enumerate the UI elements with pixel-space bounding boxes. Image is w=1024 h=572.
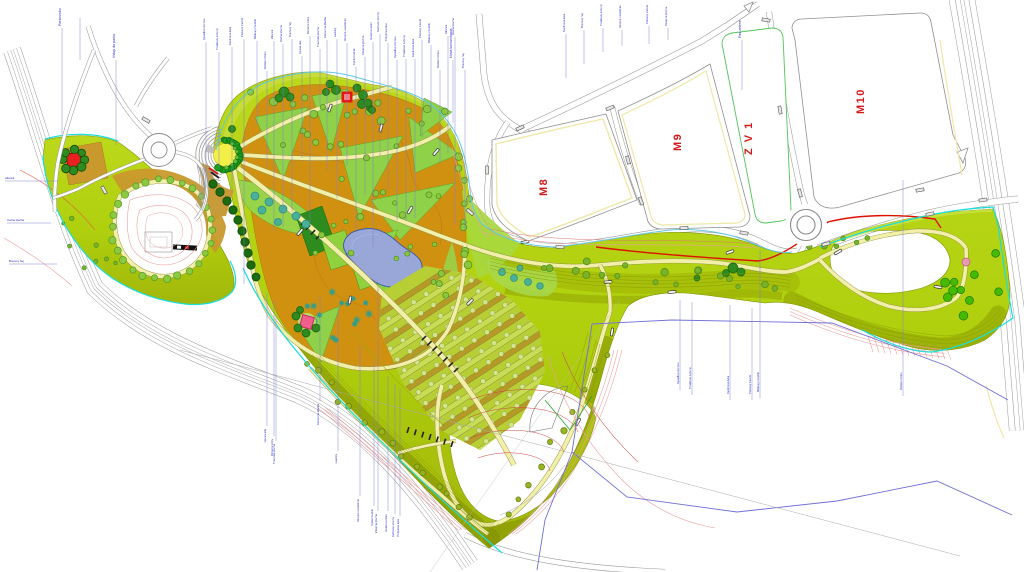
svg-text:Brezovy haj: Brezovy haj [461, 53, 465, 68]
svg-text:Lavicky: Lavicky [334, 453, 338, 463]
svg-text:Detske ihrisko: Detske ihrisko [263, 51, 267, 69]
svg-text:Trvalkove zahony: Trvalkove zahony [215, 28, 219, 50]
svg-text:Cyklochodnik: Cyklochodnik [352, 48, 356, 65]
svg-text:Mlatovy chodnik: Mlatovy chodnik [756, 371, 760, 392]
svg-text:Vysadba stromov: Vysadba stromov [393, 36, 397, 58]
svg-text:Parkovy travnik: Parkovy travnik [240, 17, 244, 37]
svg-text:Travnata plocha: Travnata plocha [272, 444, 276, 464]
svg-text:Altanok: Altanok [5, 176, 15, 180]
svg-text:Vstupna plocha: Vstupna plocha [361, 35, 365, 55]
svg-text:Kvetinova luka: Kvetinova luka [562, 13, 566, 32]
svg-text:Kvetinova luka: Kvetinova luka [228, 26, 232, 45]
svg-text:Lipova alej: Lipova alej [298, 40, 302, 54]
svg-text:Kvetinova luka: Kvetinova luka [411, 38, 415, 57]
svg-text:Izolacna zelen: Izolacna zelen [384, 514, 388, 532]
svg-text:Vstup do parku: Vstup do parku [112, 34, 116, 58]
svg-text:Brezovy haj: Brezovy haj [580, 13, 584, 28]
svg-text:M10: M10 [855, 88, 867, 114]
svg-text:Altanok: Altanok [270, 29, 274, 39]
svg-text:Parkovy travnik: Parkovy travnik [748, 374, 752, 394]
svg-text:Altanok: Altanok [444, 24, 448, 34]
svg-text:Parkovisko: Parkovisko [58, 8, 62, 26]
svg-text:Trvalkove zahony: Trvalkove zahony [402, 35, 406, 57]
svg-text:Okrasne kriky: Okrasne kriky [306, 16, 310, 34]
svg-text:Mlatovy chodnik: Mlatovy chodnik [253, 18, 257, 39]
svg-text:Verejne osvetlenie: Verejne osvetlenie [343, 18, 347, 41]
svg-text:Detske ihrisko: Detske ihrisko [436, 50, 440, 68]
svg-text:Parkovy travnik: Parkovy travnik [645, 4, 649, 24]
svg-text:Z V 1: Z V 1 [743, 121, 755, 155]
svg-text:Pas zelene: Pas zelene [738, 20, 742, 38]
svg-text:Kvetinova luka: Kvetinova luka [726, 375, 730, 394]
svg-text:Vysadba stromov: Vysadba stromov [676, 362, 680, 384]
svg-text:M9: M9 [672, 133, 684, 151]
svg-text:Kvitnuce stromy: Kvitnuce stromy [376, 12, 380, 32]
svg-text:Verejne osvetlenie: Verejne osvetlenie [356, 499, 360, 522]
svg-text:Vstupna plocha: Vstupna plocha [664, 6, 668, 26]
svg-text:Izolacna zelen: Izolacna zelen [369, 22, 373, 40]
svg-text:Kamenna dlazba: Kamenna dlazba [323, 17, 327, 38]
svg-text:Vysadba stromov: Vysadba stromov [202, 18, 206, 40]
svg-text:Lipova alej: Lipova alej [263, 429, 267, 443]
svg-text:Verejne osvetlenie: Verejne osvetlenie [618, 5, 622, 28]
svg-text:Detske ihrisko: Detske ihrisko [899, 372, 903, 390]
svg-text:M8: M8 [538, 178, 550, 196]
svg-text:Brezovy haj: Brezovy haj [288, 22, 292, 37]
svg-text:Parkovy travnik: Parkovy travnik [418, 18, 422, 38]
svg-text:Mlatovy chodnik: Mlatovy chodnik [427, 22, 431, 43]
svg-text:Vstupna plocha: Vstupna plocha [374, 514, 378, 534]
svg-text:Lavicky: Lavicky [333, 27, 337, 37]
svg-text:Nova komunikacia: Nova komunikacia [449, 29, 453, 58]
svg-text:Vodna plocha: Vodna plocha [279, 25, 283, 42]
svg-text:Pobytova luka: Pobytova luka [384, 23, 388, 41]
svg-text:Trvalkove zahony: Trvalkove zahony [599, 4, 603, 26]
svg-text:Kamenna dlazba: Kamenna dlazba [316, 404, 320, 425]
svg-text:Trvalkove zahony: Trvalkove zahony [688, 367, 692, 389]
svg-text:Vodna plocha: Vodna plocha [7, 218, 24, 222]
svg-text:Brezovy haj: Brezovy haj [9, 259, 24, 263]
svg-text:Kvitnuce stromy: Kvitnuce stromy [391, 516, 395, 536]
svg-text:Pobytova luka: Pobytova luka [396, 519, 400, 537]
svg-text:Travnata plocha: Travnata plocha [316, 27, 320, 47]
